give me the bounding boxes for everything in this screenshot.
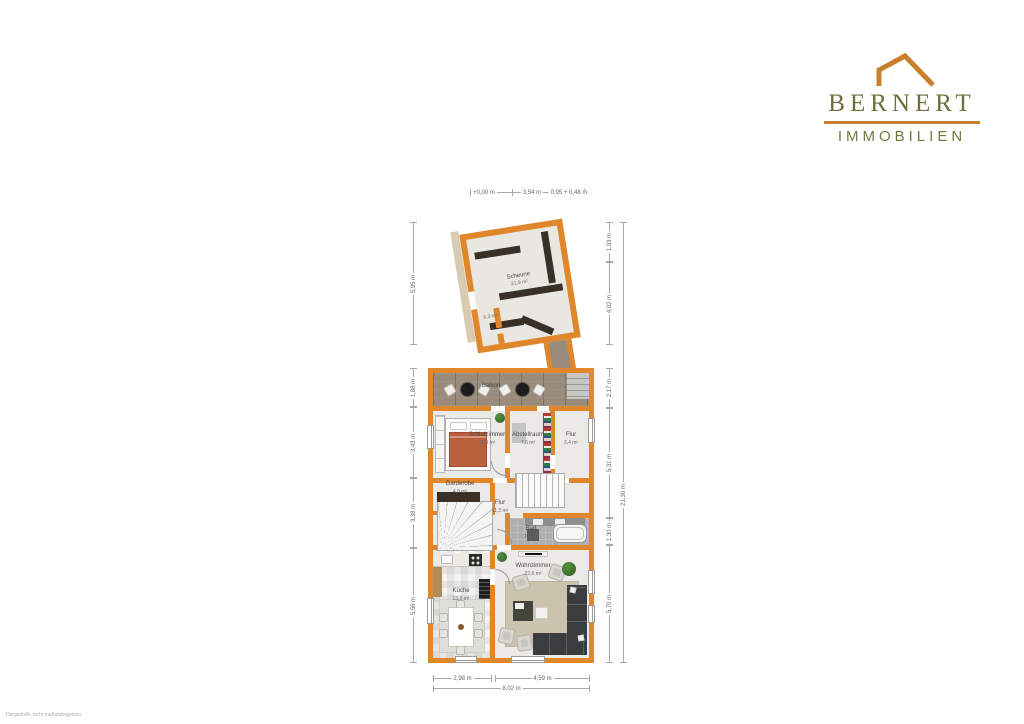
bistro-set <box>500 377 546 403</box>
room-label-kueche: Küche 13,6 m² <box>452 588 469 602</box>
dining-chair <box>439 613 448 622</box>
dimension-label: 3,54 m <box>521 190 543 196</box>
kitchen-side-counter <box>433 567 442 597</box>
dimension-label: 5,95 m <box>411 272 417 294</box>
interior-wall <box>433 406 589 411</box>
sofa-pillow <box>569 586 576 593</box>
brand-logo: BERNERT IMMOBILIEN <box>822 52 982 145</box>
washbasin <box>533 519 543 525</box>
dimension-label: 4,02 m <box>607 292 613 314</box>
bathtub <box>553 524 587 543</box>
tv <box>525 553 542 555</box>
door-opening <box>550 455 555 469</box>
table-decoration <box>458 624 464 630</box>
plant <box>497 552 507 562</box>
dining-table <box>448 607 474 647</box>
bistro-table <box>461 383 474 396</box>
window <box>427 598 434 624</box>
chair <box>498 383 512 397</box>
dimension-right-4: 5,70 m <box>609 545 610 663</box>
dimension-label: 5,70 m <box>607 593 613 615</box>
window <box>511 656 545 663</box>
door-swing-arc <box>495 569 510 584</box>
wardrobe <box>435 415 445 473</box>
door-opening <box>497 545 511 550</box>
room-label-flur-klein: Flur 3,4 m² <box>564 432 578 446</box>
sofa-pillow <box>578 635 585 642</box>
plant <box>495 413 505 423</box>
main-building: Balkon Schlafzimmer 11,8 m² Abstellraum … <box>428 368 594 663</box>
chair <box>532 383 546 397</box>
dimension-label: 1,88 m <box>411 376 417 398</box>
dining-chair <box>456 646 465 655</box>
kitchen-sink <box>441 555 453 564</box>
door-swing-arc <box>491 461 506 476</box>
brand-subtitle: IMMOBILIEN <box>822 128 982 145</box>
kitchen-appliance <box>479 579 490 599</box>
dimension-right-2: 5,31 m <box>609 408 610 518</box>
bed-pillow <box>470 422 487 430</box>
dimension-left-annex: 5,95 m <box>413 222 414 345</box>
floor-plan-page: BERNERT IMMOBILIEN Scheune 21,9 m² 6,3 m… <box>0 0 1024 724</box>
winder-staircase <box>437 501 493 551</box>
brand-divider <box>824 121 980 124</box>
dimension-tick <box>512 189 513 196</box>
bistro-table <box>516 383 529 396</box>
dimension-label: 0,95 + 0,48 m <box>549 190 590 196</box>
plant <box>562 562 576 576</box>
annex-outbuilding: Scheune 21,9 m² 6,3 m² <box>459 219 580 354</box>
annex-inner-wall <box>497 333 504 344</box>
dimension-label: 5,31 m <box>607 452 613 474</box>
dimension-bottom-total: 8,02 m <box>433 688 590 689</box>
room-label-garderobe: Garderobe 4,0 m² <box>446 481 475 495</box>
door-opening <box>491 406 505 411</box>
dimension-label: 8,02 m <box>500 686 522 692</box>
dimension-label: 21,30 m <box>621 483 627 509</box>
dimension-label: 2,98 m <box>451 676 473 682</box>
coffee-table-dark <box>513 601 533 621</box>
window <box>588 418 595 443</box>
chair <box>443 383 457 397</box>
dimension-label: 3,38 m <box>411 502 417 524</box>
dimension-label: 1,93 m <box>607 231 613 253</box>
annex-wall-segment <box>541 231 556 283</box>
room-label-scheune: Scheune 21,9 m² <box>506 271 532 289</box>
coffee-table <box>535 607 548 619</box>
tv-lowboard <box>518 551 548 557</box>
door-opening <box>537 406 549 411</box>
dining-chair <box>474 613 483 622</box>
dimension-right-a1: 1,93 m <box>609 222 610 262</box>
dimension-label: 2,17 m <box>607 377 613 399</box>
roof-icon <box>865 52 939 88</box>
dimension-right-3: 1,30 m <box>609 518 610 545</box>
entry-steps <box>567 373 589 399</box>
dimension-label: 5,56 m <box>411 594 417 616</box>
dining-chair <box>439 629 448 638</box>
dimension-left-3: 3,38 m <box>413 478 414 548</box>
straight-staircase <box>515 473 565 508</box>
dining-chair <box>474 629 483 638</box>
window <box>588 605 595 623</box>
annex-wall-segment <box>520 315 554 335</box>
kitchen-counter <box>433 553 490 567</box>
room-label-flur: Flur 11,3 m² <box>492 500 509 514</box>
bed-pillow <box>450 422 467 430</box>
dimension-left-4: 5,56 m <box>413 548 414 663</box>
room-label-abstellraum: Abstellraum 7,6 m² <box>512 432 544 446</box>
dimension-right-1: 2,17 m <box>609 368 610 408</box>
armchair <box>516 634 533 652</box>
dimension-left-2: 3,43 m <box>413 407 414 478</box>
watermark-text: Dargestellt, nicht maßstabsgetreu <box>6 712 81 718</box>
room-label-schlafzimmer: Schlafzimmer 11,8 m² <box>469 432 505 446</box>
dimension-right-total: 21,30 m <box>623 222 624 663</box>
stove <box>469 554 482 566</box>
dimension-bottom-1: 2,98 m <box>433 678 492 679</box>
door-opening <box>493 478 507 483</box>
interior-wall <box>490 550 495 658</box>
dimension-label: +0,00 m <box>471 190 497 196</box>
dimension-label: 1,30 m <box>607 520 613 542</box>
brand-name: BERNERT <box>822 90 982 118</box>
dimension-top: +0,00 m 3,54 m 0,95 + 0,48 m <box>470 192 585 193</box>
room-label-balkon: Balkon <box>482 383 500 391</box>
dimension-label: 3,43 m <box>411 431 417 453</box>
room-label-wohnzimmer: Wohnzimmer 22,6 m² <box>515 563 550 577</box>
dimension-label: 4,59 m <box>531 676 553 682</box>
annex-wall-segment <box>474 246 521 260</box>
room-label-bad: Bad 7,9 m² <box>524 526 538 540</box>
dimension-left-1: 1,88 m <box>413 368 414 407</box>
window <box>427 425 434 449</box>
window <box>588 570 595 594</box>
dimension-right-a2: 4,02 m <box>609 262 610 345</box>
dimension-bottom-2: 4,59 m <box>495 678 590 679</box>
window <box>455 656 477 663</box>
